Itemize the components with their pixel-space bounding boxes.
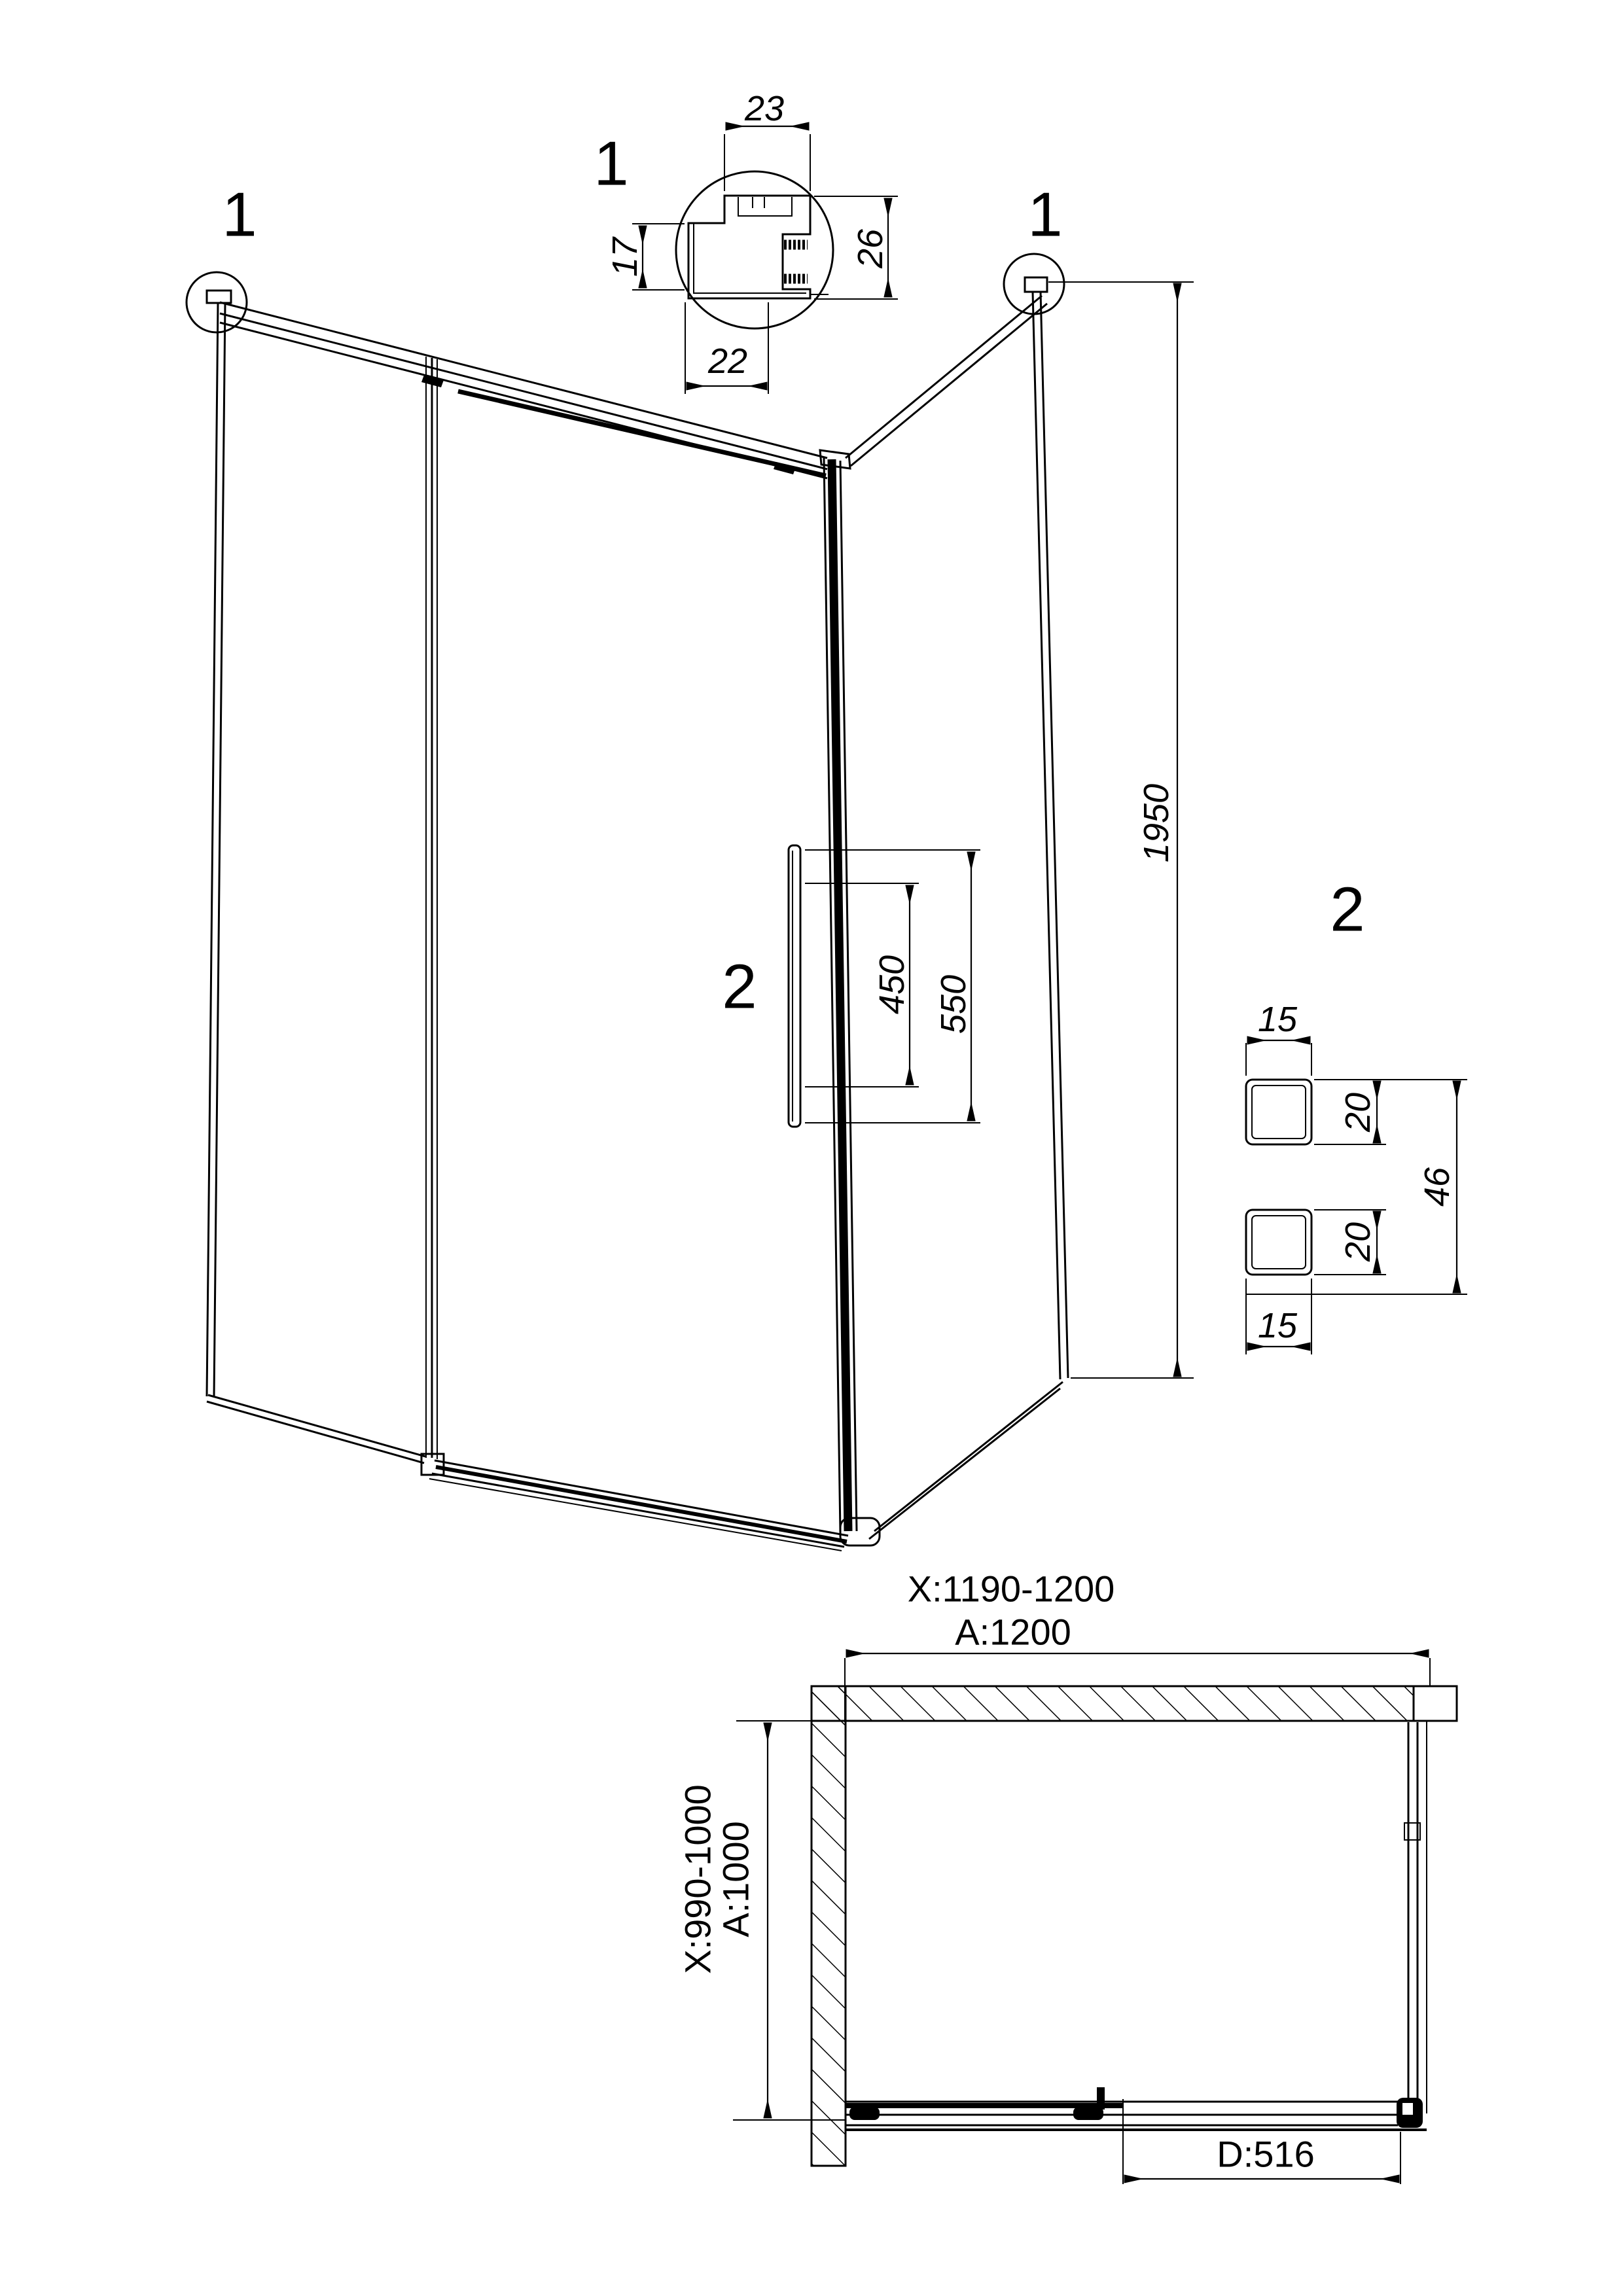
dim-width-range: X:1190-1200 xyxy=(908,1568,1115,1610)
front-post-profile xyxy=(832,459,848,1531)
top-track-profile xyxy=(458,391,826,476)
dim-1950: 1950 xyxy=(1137,784,1176,862)
main-isometric-view: 1 1 xyxy=(187,180,1194,1551)
detail-1-label: 1 xyxy=(594,129,628,199)
technical-drawing: 1 23 26 17 22 1 1 xyxy=(0,0,1623,2296)
dim-15-top: 15 xyxy=(1258,1000,1298,1039)
plan-view: X:1190-1200 A:1200 X:990-1000 A:1000 D:5… xyxy=(677,1568,1457,2185)
handle-bar-section-top xyxy=(1246,1080,1311,1144)
dim-26: 26 xyxy=(851,228,890,269)
dim-width: A:1200 xyxy=(955,1612,1071,1653)
bottom-track xyxy=(435,1460,848,1536)
drawing-sheet: 1 23 26 17 22 1 1 xyxy=(0,0,1623,2296)
corner-label-left: 1 xyxy=(222,180,257,250)
detail-1-profile-section: 1 23 26 17 22 xyxy=(594,89,898,394)
detail-2-handle-section: 2 15 20 20 46 15 xyxy=(1246,875,1467,1355)
dim-46: 46 xyxy=(1418,1167,1457,1207)
handle-detail-label: 2 xyxy=(722,952,757,1022)
plan-handle-tab xyxy=(1097,2087,1105,2110)
dim-17: 17 xyxy=(605,236,645,277)
dim-15-bottom: 15 xyxy=(1258,1306,1298,1345)
dim-23: 23 xyxy=(744,89,784,128)
corner-label-right: 1 xyxy=(1027,180,1062,250)
dim-550: 550 xyxy=(934,975,973,1034)
left-post-cap xyxy=(207,291,231,303)
dim-depth-range: X:990-1000 xyxy=(677,1784,719,1974)
door-handle xyxy=(789,845,800,1127)
right-post-cap xyxy=(1025,277,1047,292)
dim-door-opening: D:516 xyxy=(1217,2134,1314,2175)
wall-left-hatch xyxy=(811,1686,846,2166)
dim-450: 450 xyxy=(872,955,912,1014)
dim-depth: A:1000 xyxy=(715,1821,757,1937)
dim-20-bottom: 20 xyxy=(1338,1222,1378,1262)
handle-bar-section-bottom xyxy=(1246,1210,1311,1275)
door-roller-right xyxy=(774,462,796,474)
profile-top-channel xyxy=(738,197,792,216)
plan-roller-left xyxy=(849,2107,880,2120)
dim-20-top: 20 xyxy=(1338,1093,1378,1133)
wall-top-hatch xyxy=(811,1686,1414,1721)
wall-end-cap xyxy=(1414,1686,1457,1721)
detail-2-label: 2 xyxy=(1330,875,1364,945)
dim-22: 22 xyxy=(707,342,747,381)
